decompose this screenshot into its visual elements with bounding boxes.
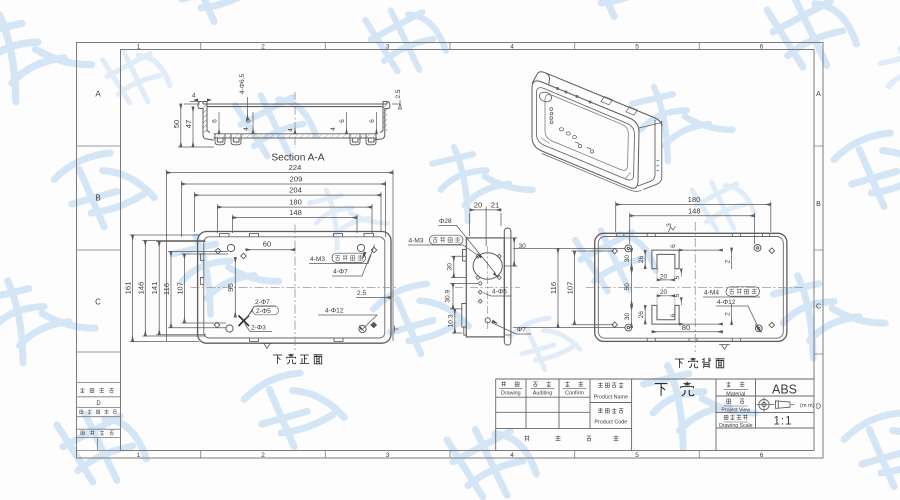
svg-text:4: 4 xyxy=(288,128,295,132)
svg-text:D: D xyxy=(816,404,821,411)
svg-text:A: A xyxy=(95,90,101,99)
svg-text:1: 1 xyxy=(137,44,141,51)
svg-text:2.5: 2.5 xyxy=(395,89,402,98)
svg-text:209: 209 xyxy=(290,175,303,184)
svg-text:146: 146 xyxy=(136,282,145,295)
svg-text:2-Φ7: 2-Φ7 xyxy=(255,299,270,306)
svg-text:6: 6 xyxy=(369,119,376,123)
svg-text:30: 30 xyxy=(624,255,631,263)
svg-text:4: 4 xyxy=(510,452,514,459)
svg-text:26: 26 xyxy=(638,256,645,264)
svg-text:95: 95 xyxy=(226,283,235,291)
svg-text:21: 21 xyxy=(491,201,499,210)
svg-text:6: 6 xyxy=(760,452,764,459)
svg-text:Drawing: Drawing xyxy=(501,391,521,397)
svg-text:A: A xyxy=(816,91,821,98)
svg-text:ABS: ABS xyxy=(772,383,797,397)
svg-text:107: 107 xyxy=(566,282,575,295)
svg-text:2: 2 xyxy=(261,44,265,51)
svg-text:4-Φ5: 4-Φ5 xyxy=(492,289,507,296)
svg-text:180: 180 xyxy=(289,198,302,207)
svg-text:2: 2 xyxy=(725,312,732,316)
svg-text:2.5: 2.5 xyxy=(357,290,366,297)
svg-text:148: 148 xyxy=(289,208,302,217)
svg-text:5: 5 xyxy=(674,293,681,297)
svg-text:20: 20 xyxy=(660,273,668,280)
svg-text:3: 3 xyxy=(666,223,673,227)
svg-text:Project View: Project View xyxy=(721,407,750,413)
svg-text:116: 116 xyxy=(549,282,558,294)
svg-text:2: 2 xyxy=(725,259,732,263)
svg-text:6: 6 xyxy=(339,119,346,123)
svg-text:Φ28: Φ28 xyxy=(439,218,452,225)
svg-text:180: 180 xyxy=(688,195,701,204)
svg-text:2: 2 xyxy=(261,452,265,459)
svg-text:(m m): (m m) xyxy=(800,403,815,409)
svg-text:20: 20 xyxy=(474,201,482,210)
svg-text:2-Φ5: 2-Φ5 xyxy=(256,308,271,315)
svg-text:1:1: 1:1 xyxy=(774,416,793,428)
svg-text:5: 5 xyxy=(635,44,639,51)
svg-text:148: 148 xyxy=(688,206,701,215)
svg-text:B: B xyxy=(95,194,100,203)
svg-text:D: D xyxy=(96,401,101,407)
svg-text:B: B xyxy=(816,201,821,208)
svg-text:6: 6 xyxy=(760,44,764,51)
svg-text:204: 204 xyxy=(289,186,302,195)
svg-text:141: 141 xyxy=(150,282,159,295)
svg-text:4-M3: 4-M3 xyxy=(310,256,325,263)
svg-text:30: 30 xyxy=(624,313,631,321)
svg-text:80: 80 xyxy=(682,323,690,332)
svg-text:224: 224 xyxy=(289,163,302,172)
svg-text:4: 4 xyxy=(243,127,250,131)
svg-text:Auditing: Auditing xyxy=(533,391,552,397)
svg-text:47: 47 xyxy=(184,120,193,128)
svg-text:C: C xyxy=(95,298,101,307)
svg-text:Confirm: Confirm xyxy=(565,391,584,397)
svg-text:4-Φ6.5: 4-Φ6.5 xyxy=(239,74,246,95)
svg-text:20: 20 xyxy=(660,289,668,296)
svg-text:50: 50 xyxy=(624,283,631,291)
svg-text:6: 6 xyxy=(670,244,677,248)
svg-text:30.9: 30.9 xyxy=(445,289,452,302)
svg-text:3: 3 xyxy=(386,44,390,51)
svg-text:6: 6 xyxy=(212,119,219,123)
svg-text:2-Φ3: 2-Φ3 xyxy=(251,325,266,332)
svg-text:C: C xyxy=(816,304,821,311)
svg-text:10.3: 10.3 xyxy=(447,314,454,327)
svg-text:3: 3 xyxy=(386,452,390,459)
svg-text:116: 116 xyxy=(162,283,171,295)
svg-text:60: 60 xyxy=(263,240,271,249)
svg-text:4: 4 xyxy=(510,44,514,51)
svg-text:4-Φ7: 4-Φ7 xyxy=(333,269,348,276)
svg-text:Product Name: Product Name xyxy=(594,395,628,401)
svg-text:4-Φ12: 4-Φ12 xyxy=(325,308,344,315)
svg-text:4: 4 xyxy=(192,93,196,100)
svg-text:4-M3: 4-M3 xyxy=(409,238,424,245)
svg-text:30: 30 xyxy=(446,263,453,271)
svg-text:4: 4 xyxy=(330,127,337,131)
svg-text:Drawing Scale: Drawing Scale xyxy=(719,423,753,429)
svg-text:1: 1 xyxy=(137,452,141,459)
svg-text:4-M4: 4-M4 xyxy=(704,290,719,297)
svg-text:Section A-A: Section A-A xyxy=(271,153,324,164)
svg-text:Material: Material xyxy=(726,391,745,397)
svg-text:5: 5 xyxy=(674,275,681,279)
svg-text:6: 6 xyxy=(670,313,677,317)
svg-text:50: 50 xyxy=(172,120,181,128)
svg-text:Product Code: Product Code xyxy=(594,420,627,426)
svg-text:161: 161 xyxy=(124,282,133,295)
svg-text:5: 5 xyxy=(635,452,639,459)
svg-text:4-Φ12: 4-Φ12 xyxy=(717,299,736,306)
svg-text:6: 6 xyxy=(246,119,253,123)
svg-text:26: 26 xyxy=(638,311,645,319)
svg-text:107: 107 xyxy=(175,282,184,295)
